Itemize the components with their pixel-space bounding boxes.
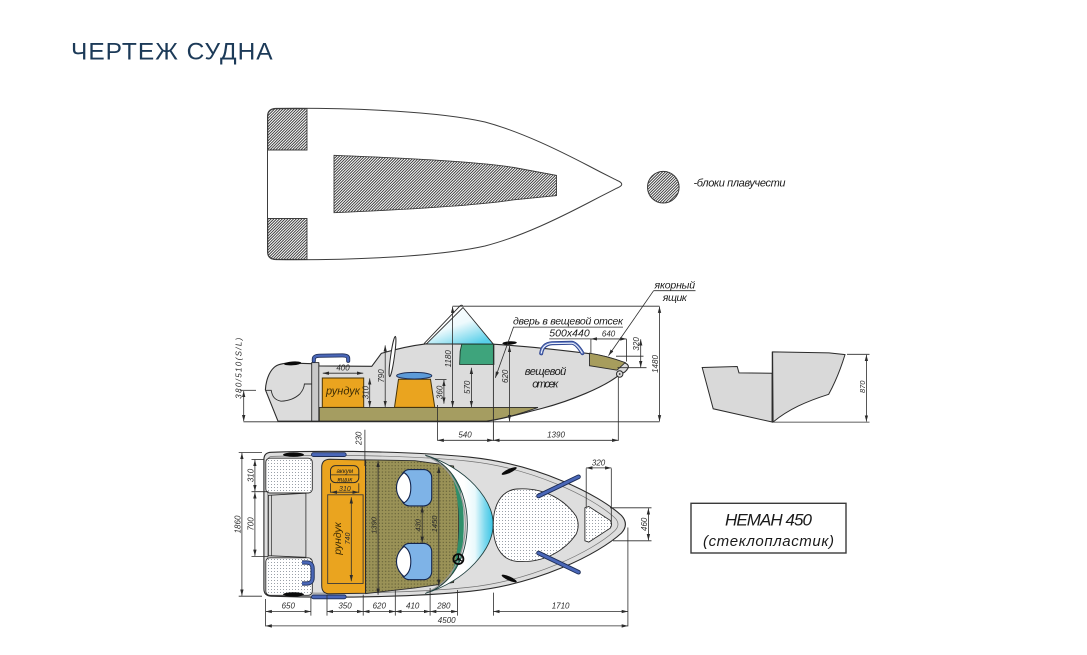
svg-text:ЧЕРТЕЖ СУДНА: ЧЕРТЕЖ СУДНА <box>71 39 274 66</box>
svg-text:870: 870 <box>858 380 867 393</box>
svg-text:4500: 4500 <box>438 616 456 625</box>
svg-text:1390: 1390 <box>370 516 379 534</box>
svg-text:320: 320 <box>632 337 641 351</box>
svg-text:620: 620 <box>501 369 510 383</box>
svg-text:400: 400 <box>336 364 350 373</box>
svg-text:460: 460 <box>640 517 649 531</box>
svg-text:ящик: ящик <box>662 292 688 304</box>
svg-text:рундук: рундук <box>332 521 344 555</box>
svg-text:280: 280 <box>436 602 451 611</box>
svg-text:1860: 1860 <box>233 515 242 533</box>
svg-text:якорный: якорный <box>654 280 696 292</box>
svg-text:320: 320 <box>592 458 606 467</box>
svg-text:НЕМАН 450: НЕМАН 450 <box>725 511 813 530</box>
svg-text:ящик: ящик <box>336 476 353 483</box>
svg-text:1480: 1480 <box>651 355 660 373</box>
svg-text:аккум: аккум <box>336 468 353 475</box>
svg-text:570: 570 <box>463 380 472 394</box>
svg-text:350: 350 <box>338 602 352 611</box>
svg-text:430: 430 <box>414 518 423 531</box>
svg-text:790: 790 <box>377 369 386 383</box>
svg-text:1710: 1710 <box>552 602 570 611</box>
svg-text:410: 410 <box>406 602 420 611</box>
svg-text:(стеклопластик): (стеклопластик) <box>703 533 834 550</box>
svg-text:вещевой: вещевой <box>525 366 567 378</box>
svg-text:1390: 1390 <box>547 431 565 440</box>
svg-text:380/510(S/L): 380/510(S/L) <box>234 337 243 398</box>
svg-text:650: 650 <box>282 602 296 611</box>
svg-text:-блоки плавучести: -блоки плавучести <box>694 178 786 190</box>
svg-text:310: 310 <box>339 486 351 493</box>
svg-text:дверь в вещевой отсек: дверь в вещевой отсек <box>513 315 624 327</box>
svg-text:500x440: 500x440 <box>549 328 590 340</box>
svg-text:отсек: отсек <box>532 378 559 390</box>
svg-text:1450: 1450 <box>430 515 439 533</box>
svg-text:620: 620 <box>373 602 387 611</box>
svg-text:310: 310 <box>361 385 370 399</box>
svg-text:540: 540 <box>458 431 472 440</box>
svg-text:700: 700 <box>246 517 255 531</box>
svg-text:1180: 1180 <box>444 350 453 368</box>
svg-text:рундук: рундук <box>325 386 361 398</box>
svg-text:310: 310 <box>246 468 255 482</box>
svg-text:640: 640 <box>602 329 616 338</box>
svg-text:360: 360 <box>435 385 444 399</box>
svg-text:740: 740 <box>345 533 352 545</box>
svg-text:230: 230 <box>355 431 364 446</box>
